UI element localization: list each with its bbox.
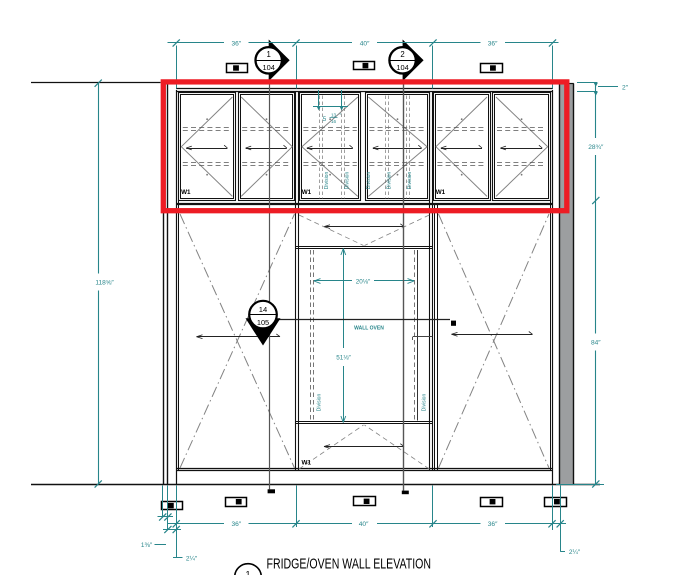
svg-text:Division: Division — [366, 172, 372, 190]
svg-text:Division: Division — [407, 172, 413, 190]
svg-text:20⅛″: 20⅛″ — [356, 278, 371, 285]
svg-text:2″: 2″ — [622, 85, 629, 92]
svg-text:Division: Division — [344, 172, 350, 190]
svg-text:2¼″: 2¼″ — [569, 549, 581, 556]
svg-text:105: 105 — [257, 318, 269, 327]
svg-text:Division: Division — [422, 394, 428, 412]
svg-text:WALL OVEN: WALL OVEN — [354, 326, 384, 332]
svg-text:1: 1 — [245, 570, 250, 575]
svg-text:118⅝″: 118⅝″ — [95, 279, 114, 286]
svg-text:16: 16 — [331, 119, 337, 124]
svg-text:5: 5 — [323, 116, 327, 123]
svg-text:1: 1 — [267, 50, 271, 59]
svg-text:104: 104 — [263, 63, 275, 72]
svg-text:2¼″: 2¼″ — [186, 556, 198, 563]
svg-text:40″: 40″ — [360, 40, 370, 47]
svg-text:Division: Division — [386, 172, 392, 190]
svg-text:36″: 36″ — [231, 521, 241, 528]
svg-text:2: 2 — [400, 50, 404, 59]
svg-text:28¾″: 28¾″ — [588, 144, 604, 151]
svg-text:84″: 84″ — [591, 339, 601, 346]
svg-text:W1: W1 — [302, 189, 312, 196]
svg-text:Division: Division — [317, 394, 323, 412]
svg-text:14: 14 — [259, 305, 267, 314]
svg-text:40″: 40″ — [359, 521, 369, 528]
svg-text:W1: W1 — [436, 189, 446, 196]
svg-text:36″: 36″ — [231, 40, 241, 47]
svg-text:36″: 36″ — [488, 521, 498, 528]
svg-text:1⅜″: 1⅜″ — [141, 542, 153, 549]
svg-text:W1: W1 — [181, 189, 191, 196]
svg-text:FRIDGE/OVEN WALL ELEVATION: FRIDGE/OVEN WALL ELEVATION — [267, 555, 432, 572]
svg-text:104: 104 — [396, 63, 408, 72]
svg-text:W1: W1 — [302, 460, 312, 467]
svg-text:13: 13 — [331, 113, 337, 118]
svg-text:51⅛″: 51⅛″ — [336, 355, 351, 362]
svg-text:Division: Division — [324, 172, 330, 190]
svg-text:36″: 36″ — [488, 40, 498, 47]
